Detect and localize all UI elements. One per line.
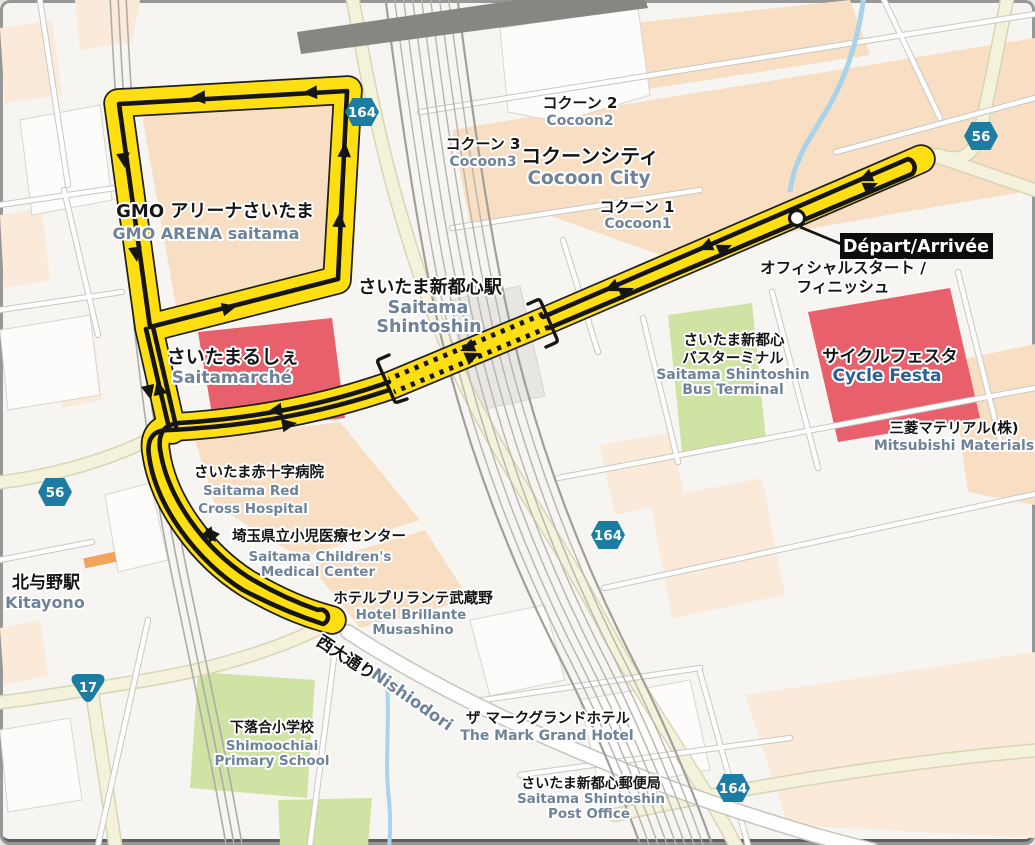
block-green-minor <box>278 798 372 845</box>
label-red-cross-en2: Cross Hospital <box>198 501 308 517</box>
label-bus-terminal-en1: Saitama Shintoshin <box>656 367 810 383</box>
badge-route-164-mid: 164 <box>591 521 625 549</box>
start-finish-label: Départ/Arrivée <box>843 237 989 257</box>
label-bus-terminal-jp1: さいたま新都心 <box>683 331 785 349</box>
block-peach-minor <box>0 620 48 684</box>
course-map: Départ/Arrivée オフィシャルスタート / フィニッシュ 164 5… <box>0 0 1035 845</box>
block-white <box>0 315 100 410</box>
label-shimoochiai-jp: 下落合小学校 <box>230 719 315 736</box>
block-peach-minor <box>745 652 1035 838</box>
label-gmo-arena-jp: GMO アリーナさいたま <box>116 201 314 222</box>
svg-text:164: 164 <box>719 781 747 797</box>
label-bus-terminal-jp2: バスターミナル <box>682 350 784 367</box>
label-cocoon1-en: Cocoon1 <box>604 216 671 232</box>
label-mitsubishi-en: Mitsubishi Materials <box>874 438 1034 454</box>
label-station-jp: さいたま新都心駅 <box>358 276 502 298</box>
label-childrens-jp: 埼玉県立小児医療センター <box>232 527 406 545</box>
label-saitamarche-jp: さいたまるしぇ <box>167 346 299 368</box>
start-finish-sub1: オフィシャルスタート / <box>760 259 926 277</box>
label-shimoochiai-en2: Primary School <box>214 753 329 769</box>
label-kitayono-en: Kitayono <box>5 593 85 612</box>
label-post-office-en1: Saitama Shintoshin <box>517 791 665 807</box>
label-red-cross-jp: さいたま赤十字病院 <box>194 463 325 481</box>
label-saitamarche-en: Saitamarché <box>172 368 292 388</box>
label-station-en1: Saitama <box>388 298 469 318</box>
label-shimoochiai-en1: Shimoochiai <box>226 738 319 754</box>
svg-text:164: 164 <box>348 105 376 121</box>
svg-text:17: 17 <box>79 681 97 696</box>
label-mitsubishi-jp: 三菱マテリアル(株) <box>889 419 1018 437</box>
label-bus-terminal-en2: Bus Terminal <box>682 382 784 398</box>
label-cocoon1-jp: コクーン 1 <box>600 198 675 216</box>
label-post-office-jp: さいたま新都心郵便局 <box>521 775 661 792</box>
leader-line <box>800 227 846 246</box>
label-childrens-en1: Saitama Children's <box>249 549 392 565</box>
label-hotel-brillante-jp: ホテルブリランテ武蔵野 <box>333 589 493 607</box>
block-white <box>0 718 82 812</box>
start-point-marker <box>790 211 805 226</box>
label-red-cross-en1: Saitama Red <box>203 483 299 499</box>
label-cycle-festa-jp: サイクルフェスタ <box>822 347 957 367</box>
svg-text:164: 164 <box>594 528 622 544</box>
map-canvas: Départ/Arrivée オフィシャルスタート / フィニッシュ 164 5… <box>0 0 1035 845</box>
label-station-en2: Shintoshin <box>376 317 481 337</box>
label-hotel-brillante-en2: Musashino <box>372 622 453 638</box>
label-cocoon-city-en: Cocoon City <box>527 168 650 189</box>
start-finish-sub2: フィニッシュ <box>797 278 890 296</box>
label-cocoon3-jp: コクーン 3 <box>446 135 521 153</box>
label-childrens-en2: Medical Center <box>261 564 376 580</box>
label-mark-grand-jp: ザ マークグランドホテル <box>466 709 630 727</box>
block-white <box>470 605 565 696</box>
label-post-office-en2: Post Office <box>548 806 630 822</box>
label-cocoon2-jp: コクーン 2 <box>543 94 618 112</box>
block-peach-minor <box>650 478 785 618</box>
label-hotel-brillante-en1: Hotel Brillante <box>356 607 467 623</box>
svg-text:56: 56 <box>972 129 991 145</box>
svg-text:56: 56 <box>46 485 65 501</box>
label-mark-grand-en: The Mark Grand Hotel <box>460 728 633 744</box>
block-peach-minor <box>75 0 140 50</box>
label-cocoon2-en: Cocoon2 <box>546 113 613 129</box>
label-cocoon3-en: Cocoon3 <box>449 154 516 170</box>
label-gmo-arena-en: GMO ARENA saitama <box>113 224 300 243</box>
block-peach-minor <box>0 208 50 288</box>
label-cocoon-city-jp: コクーンシティ <box>521 144 659 168</box>
label-kitayono-jp: 北与野駅 <box>12 573 81 593</box>
label-cycle-festa-en: Cycle Festa <box>832 366 941 386</box>
kitayono-platform <box>83 552 116 568</box>
